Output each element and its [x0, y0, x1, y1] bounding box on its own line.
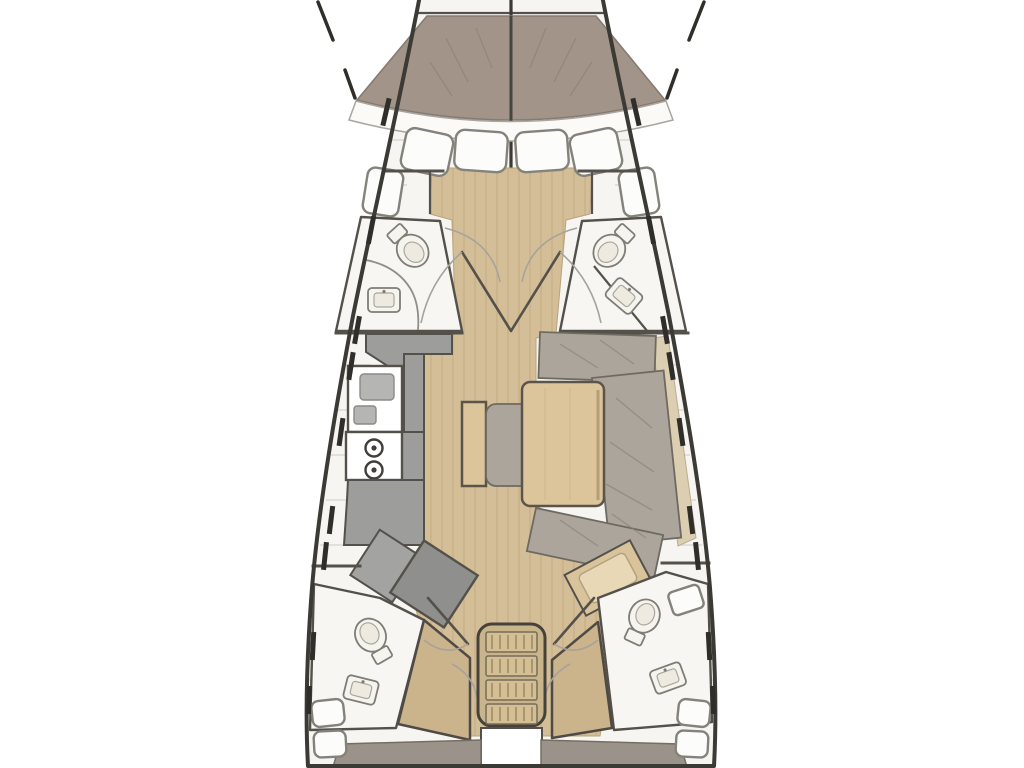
- sailboat-floorplan: [0, 0, 1024, 768]
- stove-burner: [366, 462, 383, 479]
- galley-sink-basin: [360, 374, 394, 400]
- v-berth: [349, 16, 673, 141]
- ladder-tread: [486, 656, 537, 676]
- bench-base: [462, 402, 486, 486]
- salon-table: [522, 382, 604, 506]
- ladder-tread: [486, 680, 537, 700]
- companionway-opening: [481, 728, 542, 768]
- companionway: [478, 624, 545, 768]
- ladder-tread: [486, 632, 537, 652]
- floorplan-canvas: [0, 0, 1024, 768]
- galley-filler: [402, 432, 424, 482]
- stove-burner: [366, 440, 383, 457]
- sink: [368, 288, 400, 312]
- galley-sink-drainer: [354, 406, 376, 424]
- ladder-tread: [486, 704, 537, 724]
